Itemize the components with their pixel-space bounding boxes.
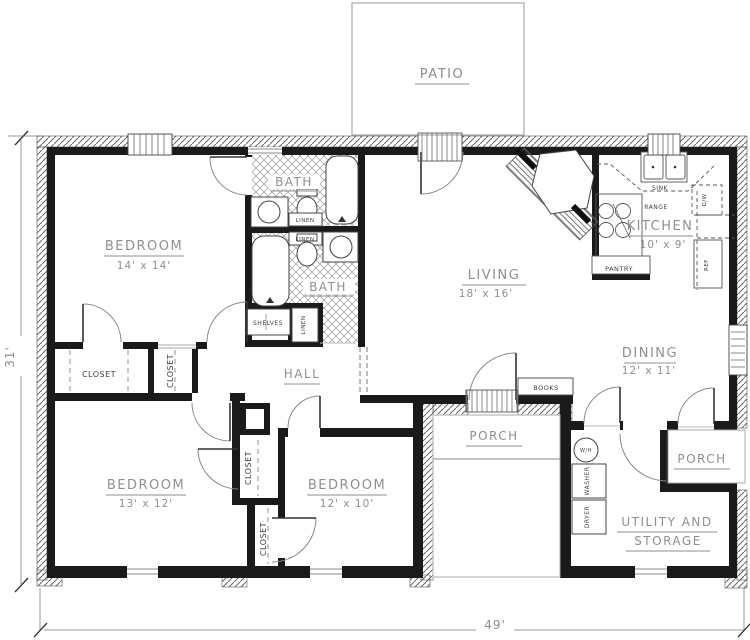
utility-rear-door bbox=[635, 566, 667, 578]
chase-inner bbox=[246, 409, 264, 429]
label-dim-height: 31' bbox=[3, 346, 17, 368]
burner-icon bbox=[599, 223, 614, 238]
label-utility-line2: STORAGE bbox=[634, 534, 702, 548]
label-dim-width: 49' bbox=[484, 618, 506, 632]
label-linen-3: LINEN bbox=[301, 316, 307, 335]
label-patio: PATIO bbox=[420, 67, 464, 82]
label-pantry: PANTRY bbox=[605, 265, 633, 273]
closet1-door-arc bbox=[83, 304, 121, 342]
label-closet-4: CLOSET bbox=[259, 522, 268, 556]
label-kitchen: KITCHEN bbox=[627, 219, 694, 234]
window-bedroom-left bbox=[127, 566, 158, 578]
label-living-size: 18' x 16' bbox=[459, 288, 513, 300]
floor-plan-page: PATIO BEDROOM 14' x 14' BATH BATH LIVING… bbox=[0, 0, 750, 640]
sink-basin-lower-icon bbox=[330, 236, 352, 258]
dimension-lines bbox=[8, 131, 750, 637]
label-porch-rear: PORCH bbox=[677, 452, 726, 466]
label-utility-line1: UTILITY AND bbox=[621, 515, 712, 529]
label-living: LIVING bbox=[468, 268, 521, 283]
label-dryer: DRYER bbox=[584, 506, 591, 529]
label-dining: DINING bbox=[622, 346, 678, 361]
bedroom-mid-door-arc bbox=[288, 396, 320, 428]
label-hall: HALL bbox=[284, 367, 321, 381]
label-bedroom-mid-size: 12' x 10' bbox=[320, 498, 374, 510]
label-closet-1: CLOSET bbox=[82, 370, 116, 379]
label-dining-size: 12' x 11' bbox=[622, 365, 676, 377]
label-range: RANGE bbox=[644, 204, 667, 211]
hall-living-opening bbox=[360, 347, 367, 393]
label-bedroom-left-size: 13' x 12' bbox=[119, 498, 173, 510]
label-refrigerator: REF bbox=[704, 259, 710, 271]
burner-icon bbox=[599, 204, 614, 219]
label-books: BOOKS bbox=[533, 384, 558, 392]
label-kitchen-size: 10' x 9' bbox=[640, 239, 687, 251]
label-closet-2: CLOSET bbox=[166, 354, 175, 388]
label-sink: SINK bbox=[652, 185, 669, 192]
floor-plan: PATIO BEDROOM 14' x 14' BATH BATH LIVING… bbox=[0, 0, 750, 640]
label-linen-2: LINEN bbox=[296, 237, 315, 243]
bedroom-left-door-arc bbox=[192, 403, 230, 441]
bathtub-lower bbox=[252, 236, 289, 306]
label-washer: WASHER bbox=[584, 467, 591, 496]
label-water-heater: W/H bbox=[580, 448, 592, 454]
kitchen-sink-unit bbox=[641, 152, 687, 182]
dining-porch-door-arc bbox=[678, 388, 714, 424]
closet4-door-arc bbox=[272, 518, 316, 562]
fireplace bbox=[506, 148, 598, 240]
label-bedroom-master: BEDROOM bbox=[105, 239, 183, 254]
toilet-tank-upper bbox=[297, 189, 317, 196]
label-bath-lower: BATH bbox=[309, 280, 347, 294]
bath-upper-door-arc bbox=[210, 157, 247, 195]
utility-door-arc bbox=[620, 434, 667, 481]
label-bedroom-mid: BEDROOM bbox=[308, 478, 386, 493]
label-dishwasher: D/W bbox=[702, 193, 708, 206]
label-shelves: SHELVES bbox=[253, 320, 283, 327]
bedroom-master-door-arc bbox=[207, 302, 247, 342]
patio-steps bbox=[418, 133, 462, 161]
doors bbox=[83, 152, 714, 562]
burner-icon bbox=[616, 204, 631, 219]
sink-basin-upper-icon bbox=[258, 201, 280, 223]
label-linen-1: LINEN bbox=[296, 218, 315, 224]
window-bedroom-master bbox=[128, 134, 172, 155]
window-dining bbox=[729, 325, 747, 375]
label-closet-3: CLOSET bbox=[244, 451, 253, 485]
front-steps bbox=[466, 390, 518, 412]
window-bath-upper bbox=[248, 147, 282, 155]
toilet-bowl-lower-icon bbox=[297, 242, 317, 266]
dining-utility-door-arc bbox=[584, 387, 620, 423]
label-porch-front: PORCH bbox=[469, 429, 518, 443]
window-bedroom-mid bbox=[310, 566, 342, 578]
bathtub-upper bbox=[326, 156, 358, 224]
label-bath-upper: BATH bbox=[275, 175, 313, 189]
label-bedroom-master-size: 14' x 14' bbox=[117, 260, 171, 272]
label-bedroom-left: BEDROOM bbox=[107, 478, 185, 493]
